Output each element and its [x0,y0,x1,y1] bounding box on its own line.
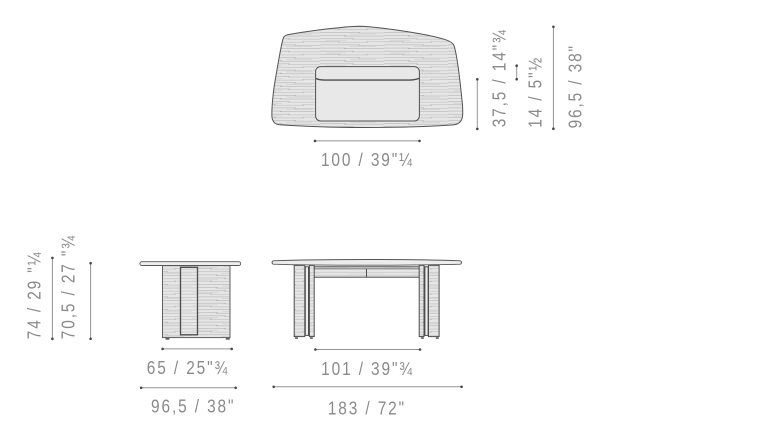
svg-text:14 / 5"½: 14 / 5"½ [524,56,546,128]
svg-text:96,5 / 38": 96,5 / 38" [564,44,586,128]
svg-text:74 / 29 "¼: 74 / 29 "¼ [23,251,45,340]
svg-text:183 / 72": 183 / 72" [328,397,406,419]
svg-text:37,5 / 14"¾: 37,5 / 14"¾ [488,28,510,127]
svg-text:70,5 / 27 "¾: 70,5 / 27 "¾ [57,234,79,339]
svg-text:65 / 25"¾: 65 / 25"¾ [147,356,229,378]
svg-text:100 / 39"¼: 100 / 39"¼ [321,149,414,171]
svg-text:101 / 39"¾: 101 / 39"¾ [321,358,414,380]
svg-text:96,5 / 38": 96,5 / 38" [151,395,235,417]
